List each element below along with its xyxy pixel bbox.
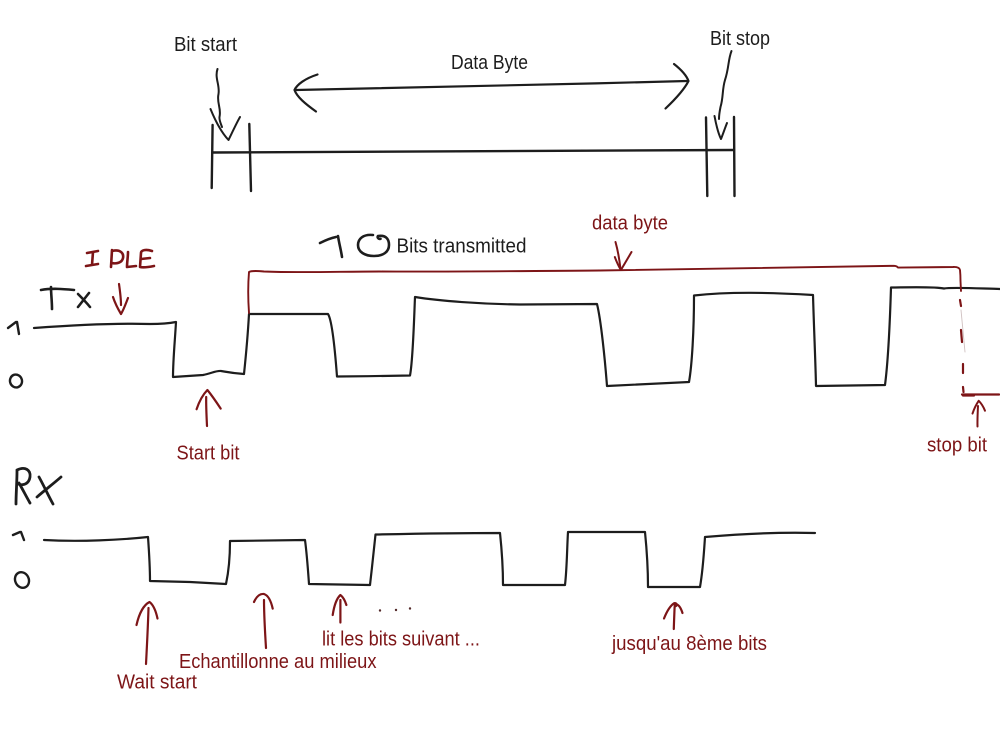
svg-text:Bit stop: Bit stop — [710, 28, 770, 50]
svg-text:Wait start: Wait start — [117, 672, 197, 694]
svg-text:Start bit: Start bit — [177, 443, 240, 465]
svg-text:jusqu'au 8ème bits: jusqu'au 8ème bits — [611, 633, 767, 655]
svg-text:Bits transmitted: Bits transmitted — [397, 236, 527, 258]
svg-text:Data Byte: Data Byte — [451, 52, 528, 74]
svg-text:stop bit: stop bit — [927, 435, 987, 457]
svg-text:lit les bits suivant ...: lit les bits suivant ... — [322, 629, 480, 651]
svg-text:data byte: data byte — [592, 213, 668, 235]
svg-text:Echantillonne au milieux: Echantillonne au milieux — [179, 651, 377, 673]
svg-text:Bit start: Bit start — [174, 34, 237, 56]
